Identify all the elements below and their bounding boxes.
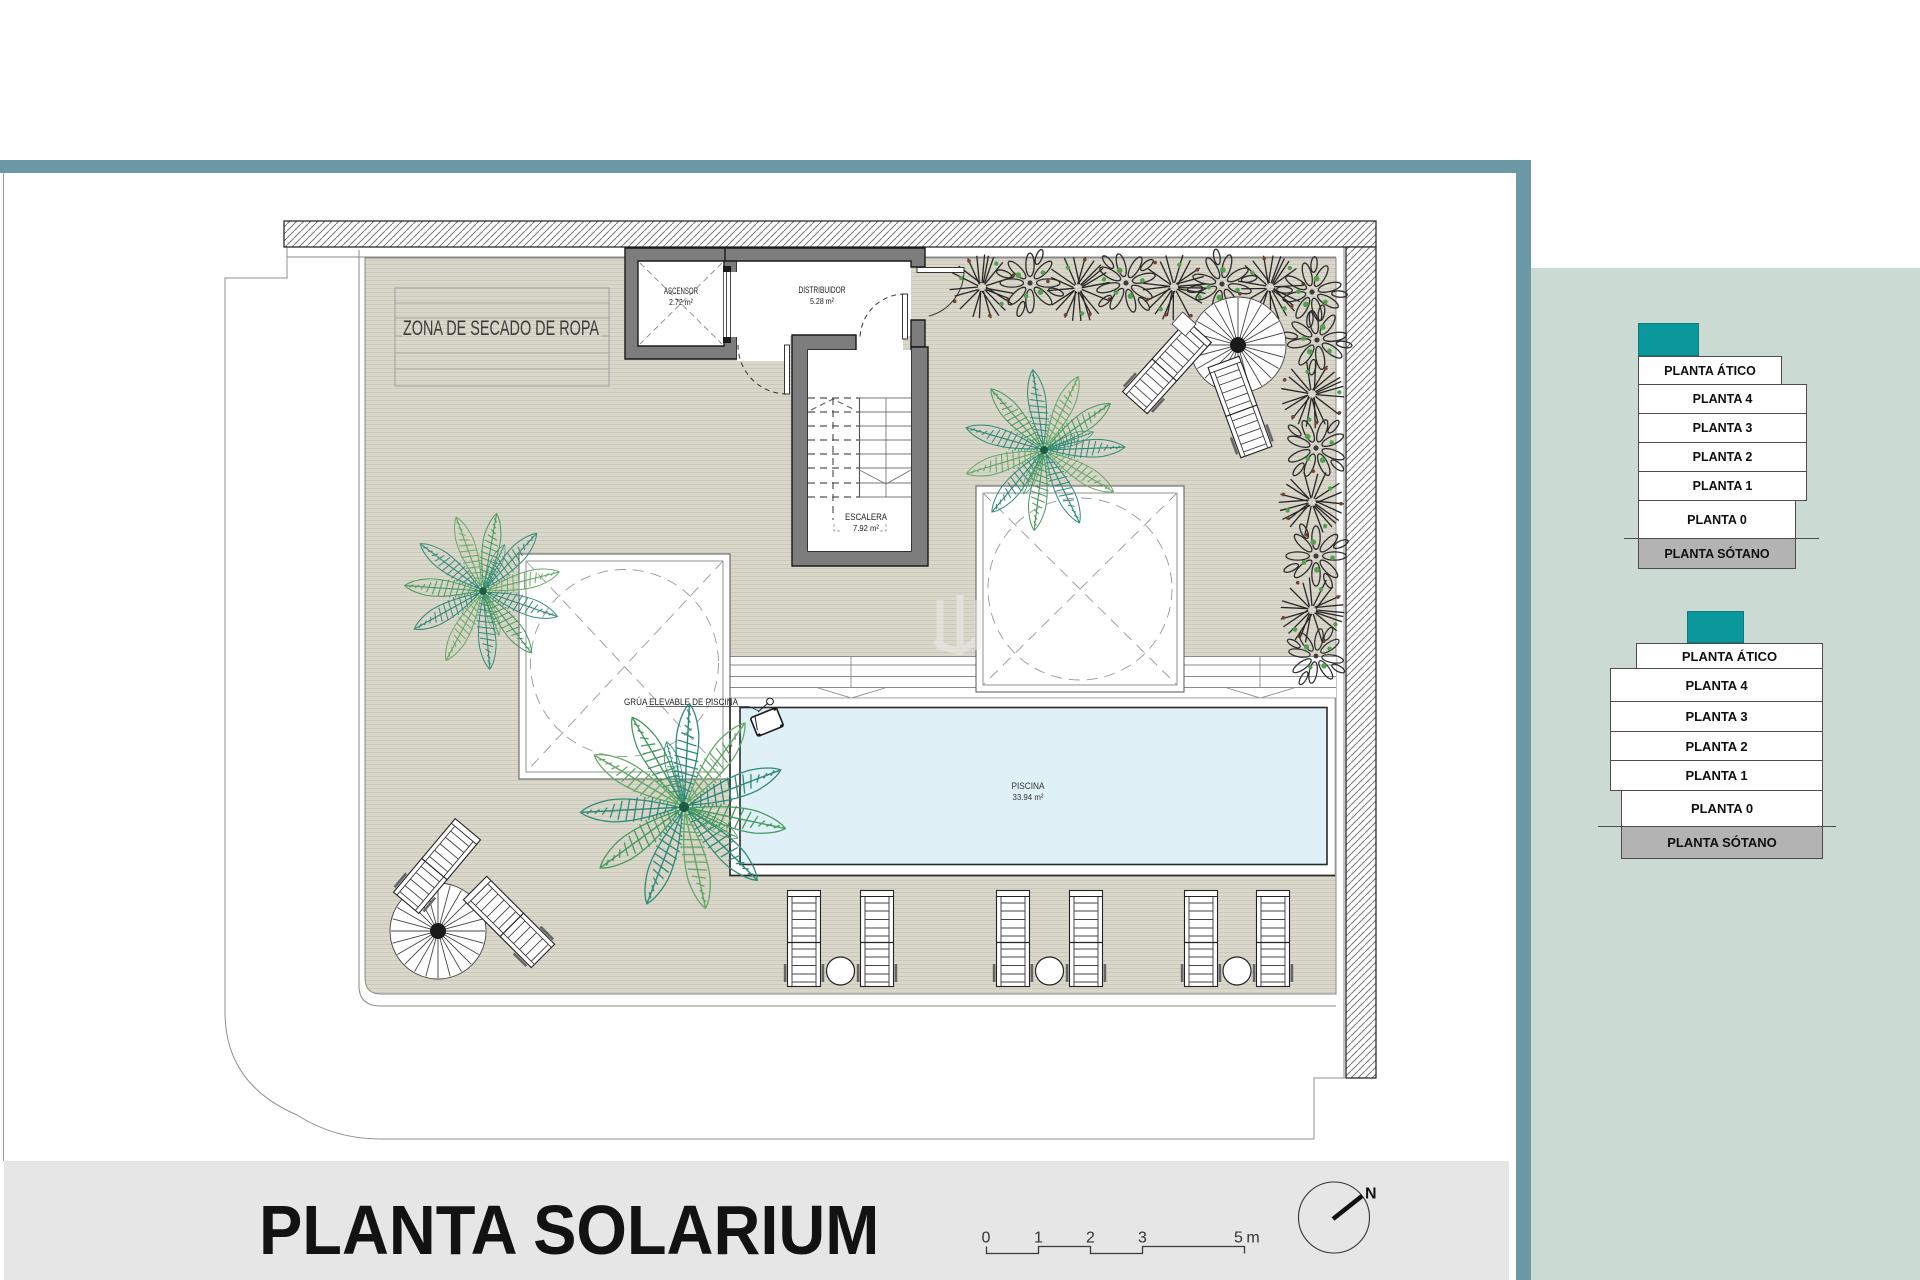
svg-text:1: 1	[1034, 1230, 1043, 1247]
svg-text:7.92 m²: 7.92 m²	[853, 523, 879, 533]
svg-text:5.28 m²: 5.28 m²	[810, 296, 834, 306]
svg-text:m: m	[1246, 1230, 1259, 1247]
svg-text:DISTRIBUIDOR: DISTRIBUIDOR	[799, 285, 846, 295]
svg-text:2.72 m²: 2.72 m²	[669, 297, 693, 307]
svg-text:N: N	[1365, 1186, 1377, 1203]
svg-text:3: 3	[1138, 1230, 1147, 1247]
svg-text:ZONA DE SECADO DE ROPA: ZONA DE SECADO DE ROPA	[403, 317, 599, 340]
svg-text:0: 0	[982, 1230, 991, 1247]
svg-text:ASCENSOR: ASCENSOR	[664, 286, 698, 296]
svg-text:2: 2	[1086, 1230, 1095, 1247]
svg-text:5: 5	[1234, 1230, 1243, 1247]
svg-text:33.94 m²: 33.94 m²	[1013, 792, 1044, 802]
svg-text:ESCALERA: ESCALERA	[845, 512, 888, 523]
svg-text:PISCINA: PISCINA	[1012, 781, 1046, 792]
